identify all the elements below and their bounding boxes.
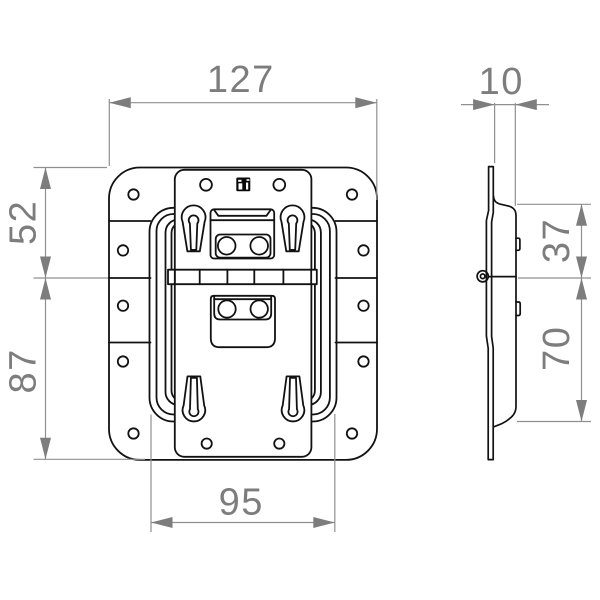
svg-text:95: 95 <box>219 482 264 524</box>
svg-text:87: 87 <box>3 348 45 393</box>
svg-text:10: 10 <box>479 61 524 103</box>
svg-text:52: 52 <box>3 200 45 245</box>
svg-text:127: 127 <box>207 59 275 101</box>
svg-text:37: 37 <box>536 218 578 263</box>
svg-text:70: 70 <box>536 326 578 371</box>
